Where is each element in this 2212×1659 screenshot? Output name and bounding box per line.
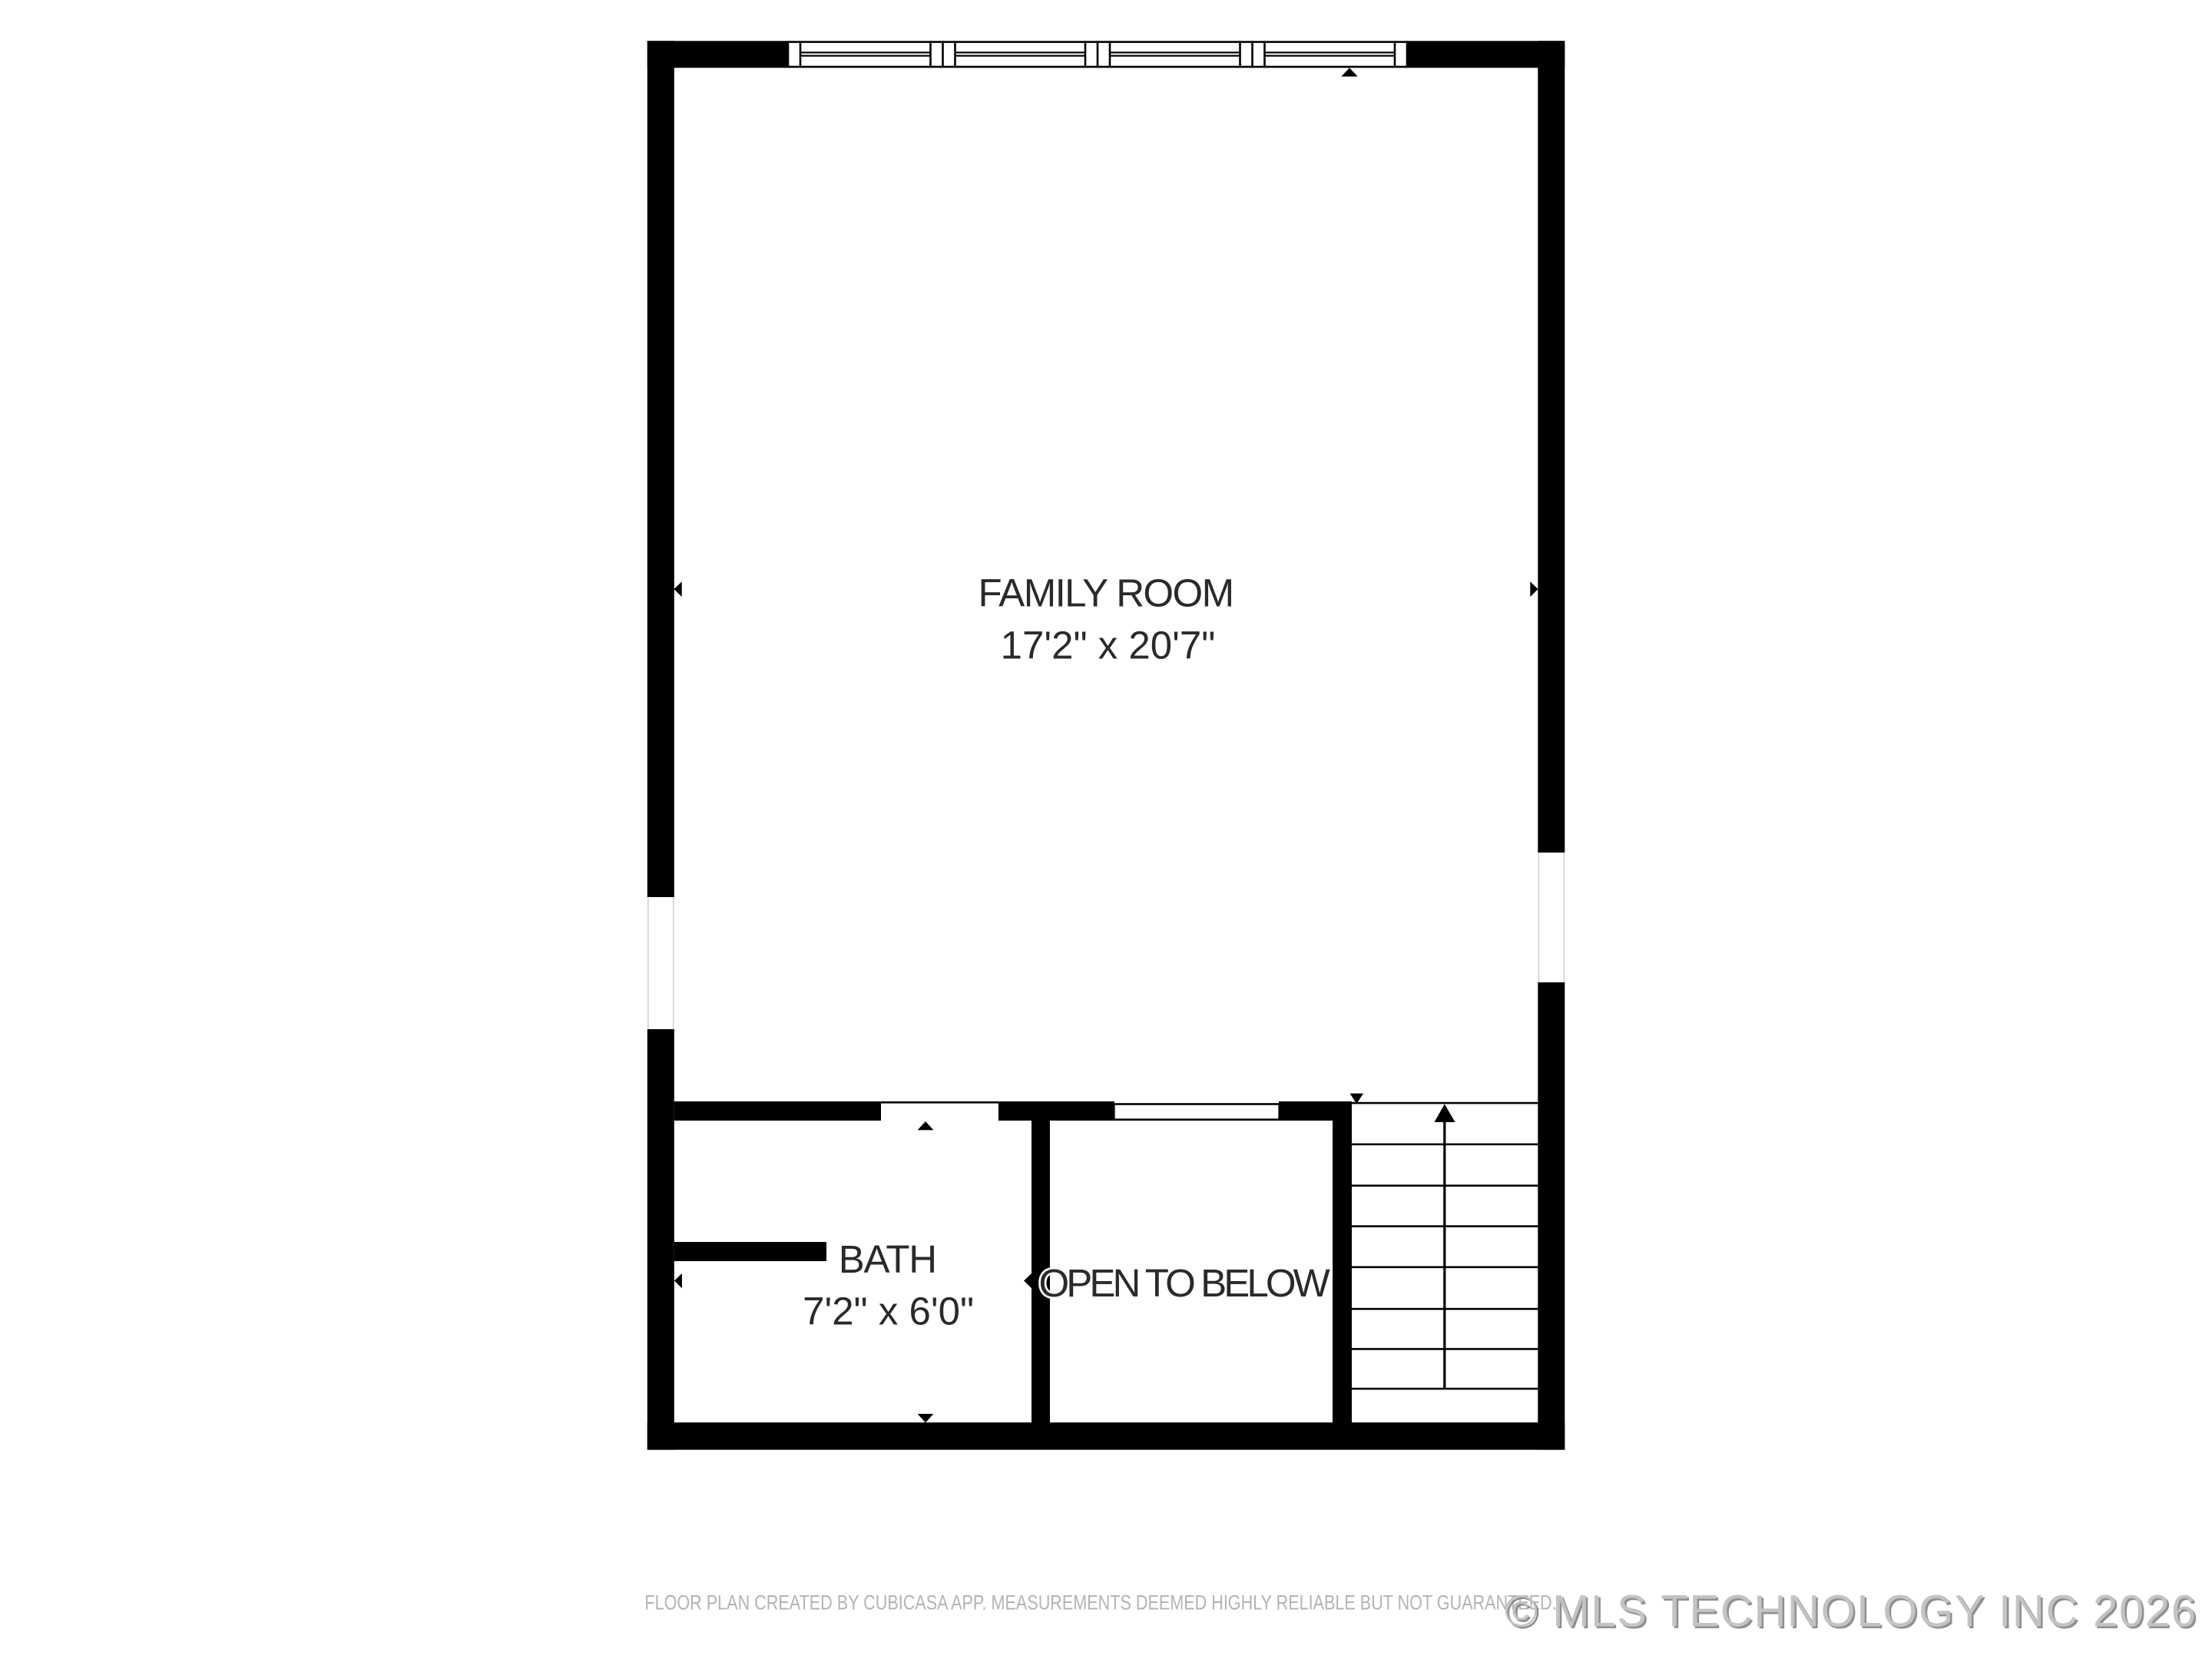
svg-text:OPEN TO BELOW: OPEN TO BELOW	[1039, 1261, 1330, 1305]
svg-text:7'2" x 6'0": 7'2" x 6'0"	[803, 1290, 974, 1333]
svg-text:FAMILY ROOM: FAMILY ROOM	[979, 571, 1233, 614]
svg-text:© MLS TECHNOLOGY INC 2026: © MLS TECHNOLOGY INC 2026	[1505, 1587, 2197, 1637]
svg-text:17'2" x 20'7": 17'2" x 20'7"	[1001, 624, 1216, 667]
svg-text:FLOOR PLAN CREATED BY CUBICASA: FLOOR PLAN CREATED BY CUBICASA APP. MEAS…	[644, 1591, 1556, 1614]
svg-text:BATH: BATH	[839, 1237, 936, 1281]
